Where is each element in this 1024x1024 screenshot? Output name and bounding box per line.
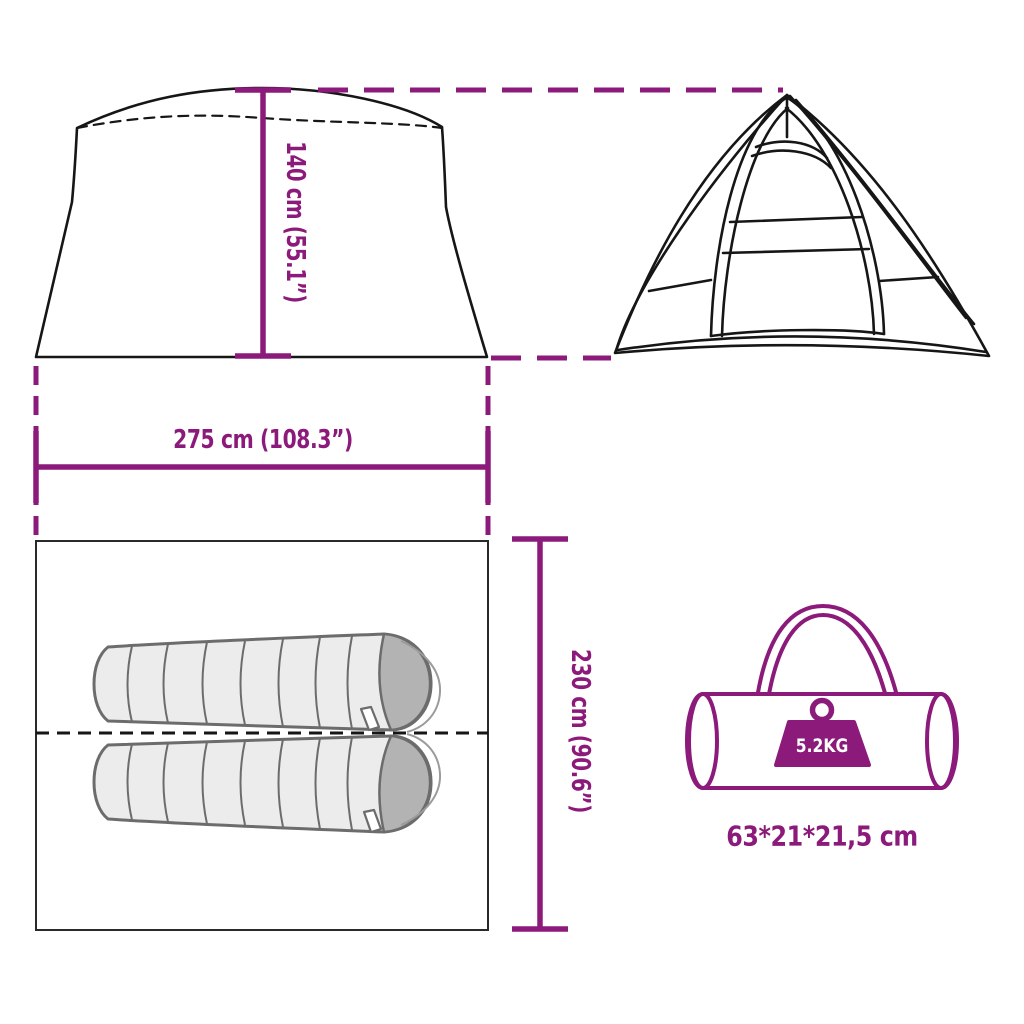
packed-size-label: 63*21*21,5 cm bbox=[726, 820, 918, 853]
tent-floor-plan bbox=[36, 541, 488, 930]
diagram-artwork bbox=[0, 0, 1024, 1024]
sleeping-bag-icon bbox=[94, 634, 440, 732]
sleeping-bag-icon bbox=[94, 734, 440, 832]
depth-dimension-line bbox=[512, 539, 568, 929]
depth-dimension-label: 230 cm (90.6”) bbox=[565, 649, 595, 813]
carry-bag-icon bbox=[687, 606, 957, 788]
weight-label: 5.2KG bbox=[796, 735, 848, 757]
tent-front-view-icon bbox=[615, 95, 989, 356]
width-dimension-label: 275 cm (108.3”) bbox=[173, 425, 353, 455]
height-dimension-label: 140 cm (55.1”) bbox=[280, 141, 310, 303]
product-dimension-diagram: 140 cm (55.1”) 275 cm (108.3”) 230 cm (9… bbox=[0, 0, 1024, 1024]
